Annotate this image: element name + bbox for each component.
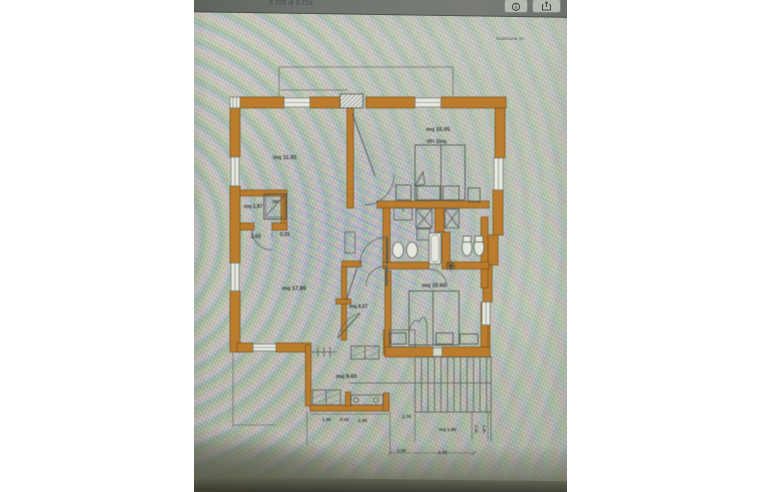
svg-text:mq 10.60: mq 10.60 xyxy=(422,283,446,289)
svg-text:mq 4.37: mq 4.37 xyxy=(349,304,368,310)
svg-text:0.25: 0.25 xyxy=(280,232,290,238)
svg-text:mq 11.92: mq 11.92 xyxy=(273,155,297,161)
svg-text:mq 1.65: mq 1.65 xyxy=(439,427,457,432)
svg-text:mq 17.89: mq 17.89 xyxy=(282,286,306,292)
svg-text:mq 8.60: mq 8.60 xyxy=(336,374,357,380)
svg-text:mq 1.87: mq 1.87 xyxy=(244,204,263,210)
svg-text:1.20: 1.20 xyxy=(482,425,487,434)
svg-text:mq 15.05: mq 15.05 xyxy=(426,127,450,133)
svg-text:18#: 18# xyxy=(272,199,280,204)
svg-text:1.33: 1.33 xyxy=(474,425,479,434)
svg-text:tlf= 2mq: tlf= 2mq xyxy=(427,139,446,145)
svg-text:1.65: 1.65 xyxy=(251,234,261,240)
